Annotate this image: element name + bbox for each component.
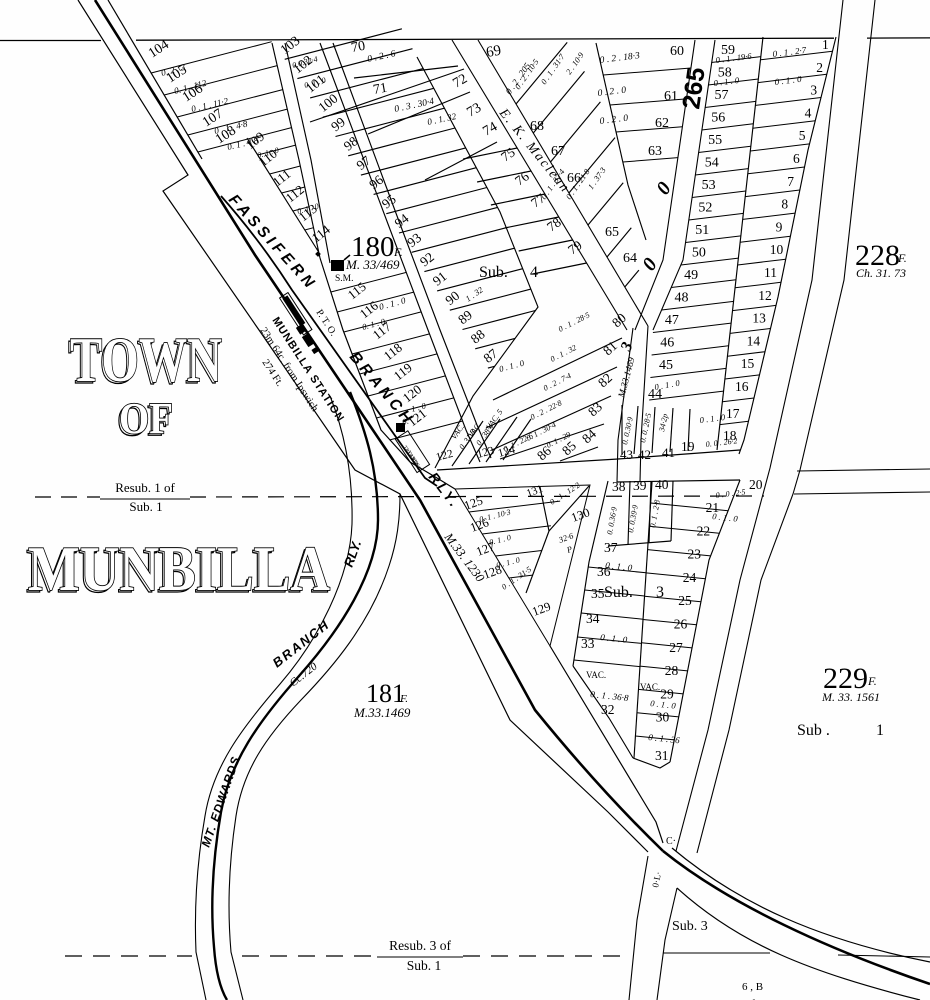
svg-text:3: 3	[810, 83, 817, 98]
svg-text:68: 68	[530, 119, 544, 134]
svg-text:50: 50	[692, 246, 706, 261]
svg-text:M. 33. 1561: M. 33. 1561	[821, 690, 880, 704]
svg-text:1: 1	[876, 722, 884, 739]
svg-text:51: 51	[695, 223, 709, 238]
svg-text:37: 37	[604, 540, 618, 555]
svg-text:OF: OF	[119, 394, 173, 443]
svg-text:56: 56	[711, 111, 725, 126]
svg-text:27: 27	[669, 640, 683, 655]
svg-text:26: 26	[674, 617, 688, 632]
svg-text:Sub .: Sub .	[797, 722, 830, 739]
svg-text:64: 64	[623, 251, 637, 266]
svg-text:65: 65	[605, 225, 619, 240]
svg-text:24: 24	[683, 570, 697, 585]
svg-text:42: 42	[638, 447, 651, 462]
svg-text:Ch. 31. 73: Ch. 31. 73	[856, 266, 906, 280]
svg-text:49: 49	[684, 268, 698, 283]
svg-text:Sub. 3: Sub. 3	[672, 919, 708, 934]
svg-text:6: 6	[793, 151, 800, 166]
svg-text:F.: F.	[399, 693, 408, 705]
svg-text:22: 22	[697, 523, 711, 538]
svg-text:6 , B: 6 , B	[742, 981, 763, 993]
svg-text:70: 70	[350, 39, 366, 56]
svg-text:4: 4	[530, 264, 538, 281]
svg-text:MUNBILLA: MUNBILLA	[28, 533, 330, 604]
svg-text:63: 63	[648, 144, 662, 159]
svg-text:35: 35	[591, 586, 605, 601]
svg-text:Resub. 3 of: Resub. 3 of	[389, 938, 451, 953]
svg-text:20: 20	[749, 477, 763, 492]
svg-text:23: 23	[688, 547, 702, 562]
svg-text:7: 7	[787, 174, 794, 189]
svg-text:17: 17	[726, 406, 740, 421]
svg-text:34: 34	[586, 611, 600, 626]
svg-text:40: 40	[655, 477, 669, 492]
svg-text:62: 62	[655, 116, 669, 131]
svg-text:31: 31	[655, 748, 669, 763]
svg-text:57: 57	[715, 88, 729, 103]
svg-text:33: 33	[581, 636, 595, 651]
svg-text:41: 41	[662, 445, 675, 460]
svg-text:38: 38	[612, 479, 626, 494]
svg-text:69: 69	[485, 43, 503, 61]
svg-text:12: 12	[758, 288, 772, 303]
svg-text:54: 54	[705, 156, 719, 171]
svg-text:Sub. 1: Sub. 1	[407, 958, 442, 973]
svg-text:52: 52	[698, 201, 712, 216]
svg-text:M.33.1469: M.33.1469	[353, 705, 411, 720]
svg-text:67: 67	[551, 144, 565, 159]
svg-text:61: 61	[664, 89, 678, 104]
svg-text:53: 53	[702, 178, 716, 193]
svg-text:14: 14	[747, 333, 761, 348]
svg-text:15: 15	[741, 356, 755, 371]
svg-text:F.: F.	[867, 674, 877, 688]
svg-text:2: 2	[816, 60, 823, 75]
svg-text:Sub. 1: Sub. 1	[129, 499, 162, 514]
svg-text:F.: F.	[897, 251, 907, 265]
svg-text:55: 55	[708, 133, 722, 148]
svg-text:9: 9	[776, 219, 783, 234]
svg-text:25: 25	[678, 593, 692, 608]
svg-text:M. 33/469: M. 33/469	[345, 257, 400, 272]
svg-text:30: 30	[656, 710, 670, 725]
svg-text:32: 32	[601, 702, 615, 717]
svg-text:C·: C·	[666, 836, 676, 847]
svg-text:28: 28	[665, 663, 679, 678]
svg-text:265: 265	[677, 66, 711, 111]
svg-text:Resub. 1 of: Resub. 1 of	[115, 480, 175, 495]
svg-text:48: 48	[675, 291, 689, 306]
svg-text:VAC.: VAC.	[640, 682, 660, 692]
svg-text:8: 8	[781, 197, 788, 212]
svg-text:5: 5	[799, 128, 806, 143]
svg-text:TOWN: TOWN	[70, 324, 222, 395]
svg-text:1: 1	[822, 37, 829, 52]
svg-text:46: 46	[660, 336, 674, 351]
svg-text:10: 10	[770, 242, 784, 257]
svg-text:4: 4	[805, 105, 812, 120]
svg-text:11: 11	[764, 265, 777, 280]
svg-text:39: 39	[633, 478, 647, 493]
svg-text:VAC.: VAC.	[586, 670, 606, 680]
svg-text:16: 16	[735, 379, 749, 394]
svg-text:43: 43	[620, 447, 633, 462]
svg-text:13: 13	[752, 311, 766, 326]
svg-text:S.M.: S.M.	[335, 274, 353, 284]
svg-text:45: 45	[659, 358, 673, 373]
svg-text:60: 60	[670, 44, 684, 59]
svg-text:47: 47	[665, 313, 679, 328]
